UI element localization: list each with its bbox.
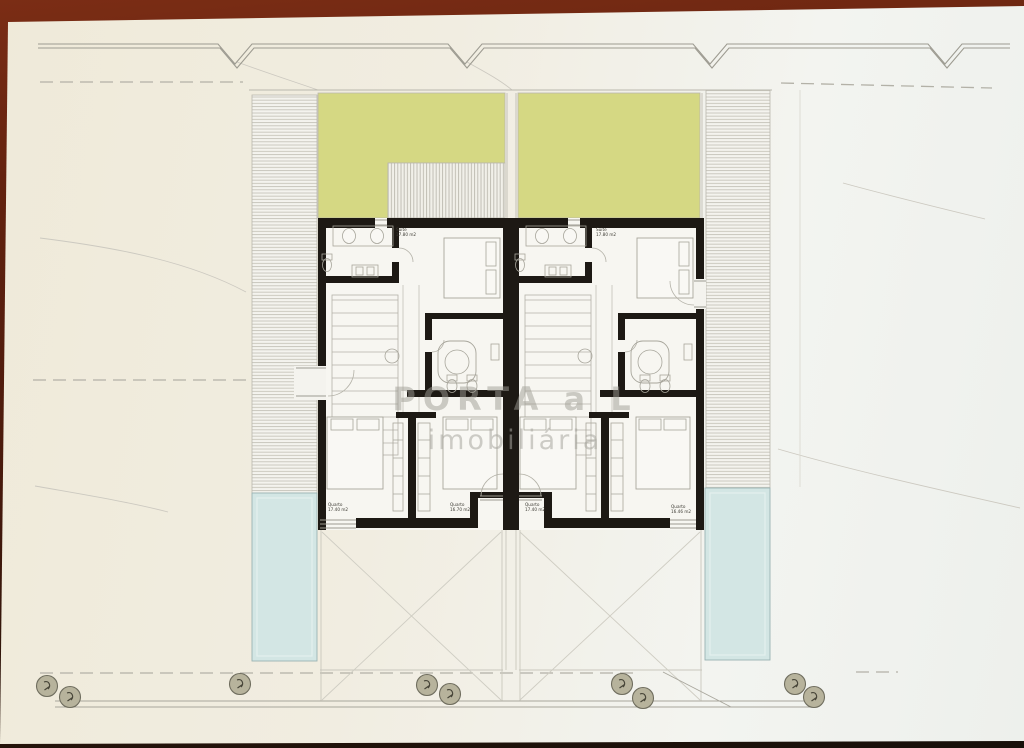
tree-marker-icon [60, 687, 81, 708]
label-quarto1-right-area: 17.40 m2 [525, 507, 545, 512]
site-boundary-line [38, 44, 1010, 68]
tree-marker-icon [804, 687, 825, 708]
tree-markers [37, 674, 825, 709]
tree-marker-icon [633, 688, 654, 709]
label-quarto1-left-area: 17.40 m2 [328, 507, 348, 512]
pergola-deck [388, 163, 505, 218]
patio-areas [320, 530, 702, 701]
pool-right [705, 488, 770, 660]
tree-marker-icon [440, 684, 461, 705]
side-path-left [252, 95, 317, 493]
pool-left [252, 493, 317, 661]
label-quarto2-right-area: 16.46 m2 [671, 509, 691, 514]
garden-right [518, 93, 700, 218]
plan-paper-sheet: Suite 17.80 m2 Suite 17.80 m2 Quarto 17.… [0, 0, 1024, 748]
label-suite-right-area: 17.80 m2 [596, 232, 616, 237]
label-suite-left-area: 17.80 m2 [396, 232, 416, 237]
floor-plan-drawing: Suite 17.80 m2 Suite 17.80 m2 Quarto 17.… [0, 0, 1024, 748]
label-quarto2-left-area: 16.70 m2 [450, 507, 470, 512]
tree-marker-icon [37, 676, 58, 697]
side-path-right [706, 90, 770, 488]
tree-marker-icon [612, 674, 633, 695]
tree-marker-icon [230, 674, 251, 695]
tree-marker-icon [785, 674, 806, 695]
tree-marker-icon [417, 675, 438, 696]
